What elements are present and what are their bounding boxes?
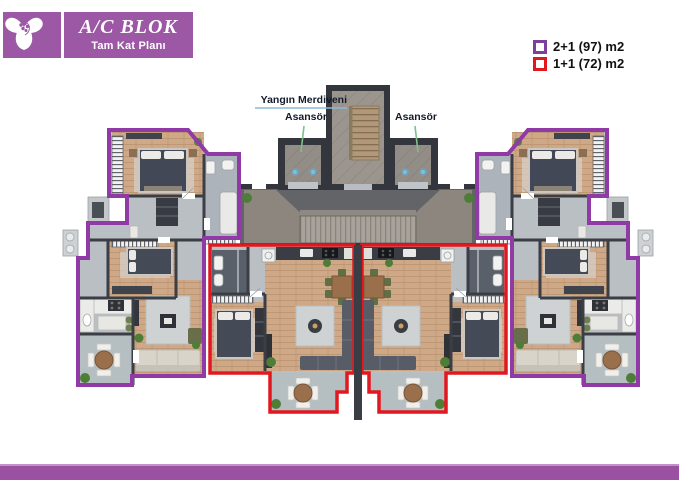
toilet	[214, 274, 223, 286]
footer-bar	[0, 464, 679, 480]
elevator-right	[388, 138, 438, 190]
legend-item-1plus1: 1+1 (72) m2	[533, 55, 624, 72]
double-bed	[215, 309, 253, 359]
radiator	[112, 241, 158, 247]
washing-machine	[262, 249, 275, 262]
plant	[266, 357, 276, 367]
plant	[135, 334, 144, 343]
stool	[126, 325, 133, 332]
kitchen-sink	[83, 314, 91, 326]
fridge	[344, 248, 353, 259]
elevator-door-sill	[288, 182, 318, 189]
nightstand	[189, 149, 197, 157]
toilet	[222, 160, 234, 170]
logo-box	[3, 12, 61, 58]
kitchen-island	[98, 316, 126, 330]
legend-label-1plus1: 1+1 (72) m2	[553, 56, 624, 71]
sofa	[136, 350, 200, 371]
central-core	[240, 85, 476, 247]
cooktop	[108, 300, 124, 311]
bathtub	[220, 192, 237, 234]
apartment-1plus1-left	[210, 245, 354, 412]
plant	[192, 341, 200, 349]
sink	[206, 161, 215, 174]
console	[130, 226, 138, 238]
wardrobe	[112, 136, 123, 194]
wardrobe	[255, 308, 264, 352]
nightstand	[129, 149, 137, 157]
plant	[323, 259, 331, 267]
center-party-wall	[354, 245, 362, 420]
kitchen-counter	[276, 247, 354, 260]
title-box: A/C BLOK Tam Kat Planı	[64, 12, 193, 58]
unit-type-legend: 2+1 (97) m2 1+1 (72) m2	[533, 38, 624, 72]
fire-escape-label: Yangın Merdiveni	[200, 94, 347, 106]
elevator-left	[278, 138, 328, 190]
dresser	[126, 133, 162, 139]
stairwell-door-sill	[344, 184, 372, 190]
floor-plan-canvas	[0, 0, 679, 480]
stair-flight	[352, 106, 379, 160]
radiator	[211, 296, 253, 303]
floor-plan-sheet: A/C BLOK Tam Kat Planı 2+1 (97) m2 1+1 (…	[0, 0, 679, 480]
apartment-1plus1-right	[362, 245, 506, 412]
tv-unit	[134, 300, 139, 326]
trillium-flower-icon	[3, 12, 45, 52]
stool	[126, 317, 133, 324]
dining-table	[332, 276, 352, 298]
hall-wardrobe	[156, 198, 178, 226]
elevator-door-sill	[398, 182, 428, 189]
sink	[214, 256, 223, 270]
plan-subtitle: Tam Kat Planı	[64, 41, 193, 53]
legend-item-2plus1: 2+1 (97) m2	[533, 38, 624, 55]
desk	[112, 286, 152, 294]
block-title: A/C BLOK	[64, 17, 193, 38]
legend-label-2plus1: 2+1 (97) m2	[553, 39, 624, 54]
legend-swatch-2plus1	[533, 40, 547, 54]
single-bed	[126, 247, 173, 276]
double-bed	[138, 148, 188, 193]
elevator-right-label: Asansör	[392, 111, 440, 123]
plant	[464, 193, 474, 203]
main-staircase	[300, 210, 416, 243]
plant	[271, 399, 281, 409]
plant	[242, 193, 252, 203]
cooktop	[322, 248, 338, 258]
plant	[80, 373, 90, 383]
legend-swatch-1plus1	[533, 57, 547, 71]
kitchen-sink	[300, 249, 313, 257]
elevator-left-label: Asansör	[282, 111, 330, 123]
